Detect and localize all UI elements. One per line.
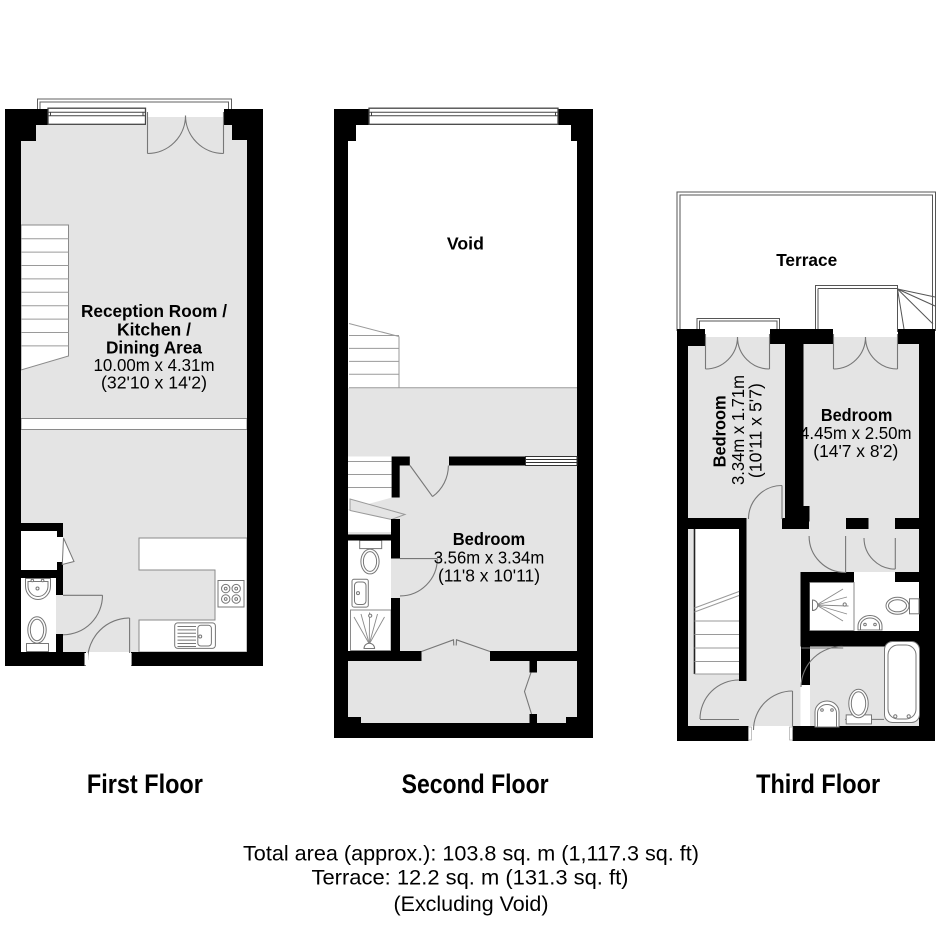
svg-text:First Floor: First Floor (87, 769, 203, 799)
svg-text:Void: Void (447, 234, 484, 254)
svg-text:Third Floor: Third Floor (756, 769, 880, 799)
svg-text:Terrace: Terrace (776, 250, 837, 270)
svg-text:Terrace: 12.2 sq. m (131.3 sq: Terrace: 12.2 sq. m (131.3 sq. ft) (312, 865, 629, 889)
svg-text:Bedroom: Bedroom (710, 395, 730, 467)
svg-text:Total area (approx.): 103.8 sq: Total area (approx.): 103.8 sq. m (1,117… (243, 841, 699, 865)
svg-text:4.45m x 2.50m: 4.45m x 2.50m (800, 423, 912, 443)
svg-text:(32'10 x 14'2): (32'10 x 14'2) (101, 373, 207, 393)
svg-text:Bedroom: Bedroom (821, 405, 893, 425)
svg-text:(14'7 x 8'2): (14'7 x 8'2) (813, 441, 898, 461)
svg-text:Kitchen /: Kitchen / (117, 319, 191, 339)
svg-text:Bedroom: Bedroom (453, 529, 526, 549)
svg-text:Reception Room /: Reception Room / (81, 301, 227, 321)
svg-text:(11'8 x 10'11): (11'8 x 10'11) (438, 566, 540, 586)
svg-text:Second Floor: Second Floor (402, 769, 549, 799)
svg-text:(10'11 x 5'7): (10'11 x 5'7) (746, 383, 766, 478)
svg-text:(Excluding Void): (Excluding Void) (394, 892, 549, 916)
svg-text:3.56m x 3.34m: 3.56m x 3.34m (434, 548, 545, 568)
